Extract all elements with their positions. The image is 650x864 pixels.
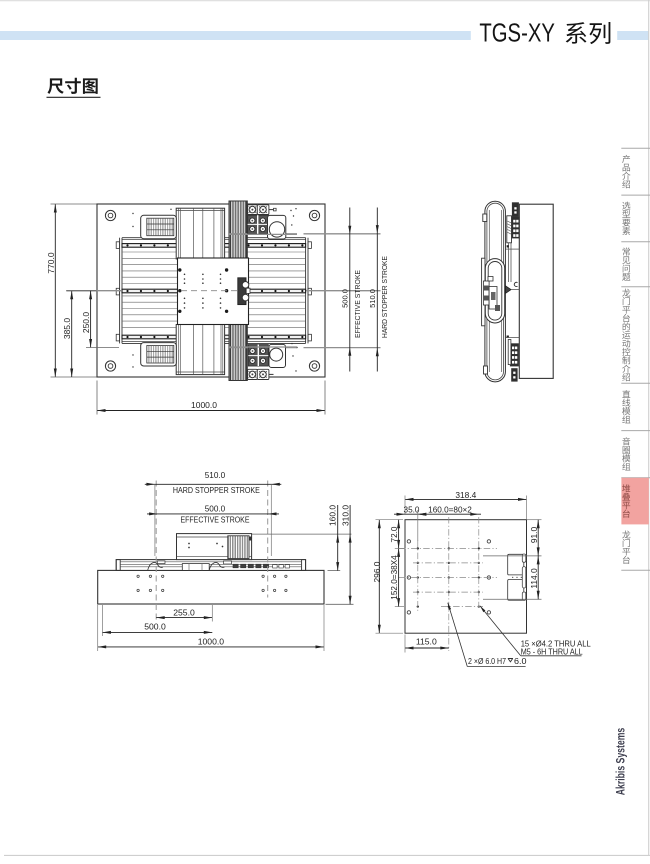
- svg-text:152.0=38X4: 152.0=38X4: [390, 555, 399, 600]
- svg-text:510.0: 510.0: [205, 471, 226, 480]
- svg-text:HARD STOPPER STROKE: HARD STOPPER STROKE: [380, 256, 389, 338]
- svg-text:385.0: 385.0: [62, 318, 72, 340]
- svg-text:HARD STOPPER STROKE: HARD STOPPER STROKE: [173, 486, 260, 495]
- svg-text:500.0: 500.0: [341, 289, 350, 308]
- svg-text:M5 - 6H THRU ALL: M5 - 6H THRU ALL: [521, 647, 583, 656]
- svg-text:250.0: 250.0: [81, 312, 91, 334]
- svg-text:510.0: 510.0: [368, 289, 377, 308]
- svg-text:115.0: 115.0: [416, 637, 437, 647]
- svg-text:91.0: 91.0: [529, 527, 539, 544]
- svg-text:72.0: 72.0: [390, 526, 399, 542]
- svg-text:160.0=80×2: 160.0=80×2: [428, 505, 472, 514]
- svg-text:114.0: 114.0: [529, 568, 539, 589]
- svg-text:1000.0: 1000.0: [198, 637, 225, 647]
- svg-text:2 ×Ø 6.0 H7: 2 ×Ø 6.0 H7: [468, 657, 506, 666]
- svg-text:TGS-XY: TGS-XY: [479, 18, 555, 48]
- svg-text:310.0: 310.0: [340, 505, 350, 526]
- svg-text:Akribis Systems: Akribis Systems: [614, 728, 628, 796]
- svg-text:296.0: 296.0: [372, 561, 382, 582]
- svg-text:1000.0: 1000.0: [191, 400, 217, 410]
- svg-text:255.0: 255.0: [173, 607, 195, 617]
- svg-text:EFFECTIVE STROKE: EFFECTIVE STROKE: [353, 270, 362, 338]
- svg-text:6.0: 6.0: [514, 657, 527, 666]
- svg-text:EFFECTIVE STROKE: EFFECTIVE STROKE: [181, 516, 250, 525]
- svg-text:500.0: 500.0: [144, 622, 166, 632]
- svg-text:770.0: 770.0: [46, 252, 56, 274]
- svg-text:318.4: 318.4: [455, 490, 476, 500]
- svg-text:160.0: 160.0: [328, 505, 338, 526]
- svg-text:500.0: 500.0: [205, 505, 226, 514]
